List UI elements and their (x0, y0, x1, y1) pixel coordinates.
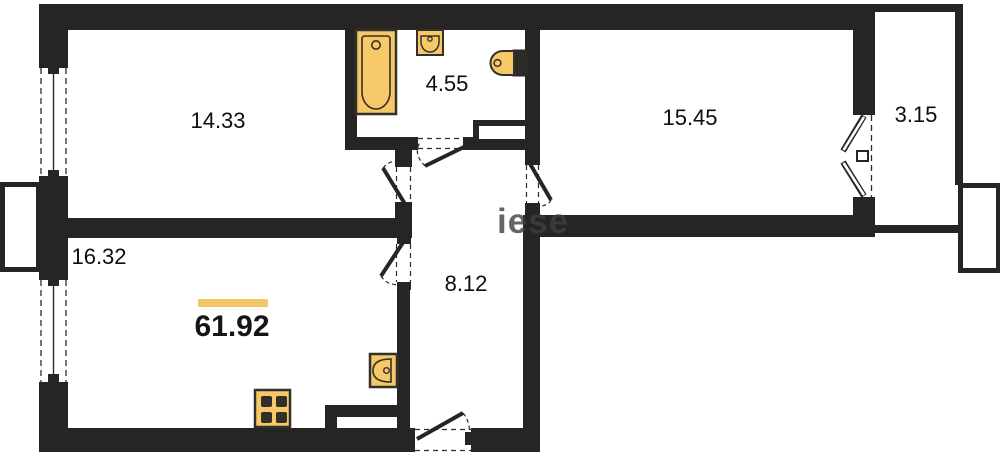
stove-icon (255, 390, 290, 427)
window-tick (48, 278, 59, 286)
bathtub-icon (356, 30, 396, 114)
right-wall-upper (853, 12, 875, 112)
balcony-right-wall (955, 4, 963, 185)
bedroom-bottom-wall (523, 215, 875, 237)
watermark-text: iese (497, 204, 569, 239)
balcony-bottom-wall (875, 225, 960, 233)
door-handle (857, 151, 868, 161)
room-label-hallway: 8.12 (445, 271, 488, 297)
stove-burner (261, 396, 272, 407)
door-leaf (383, 168, 405, 204)
window-tick (48, 66, 59, 74)
hall-right-wall (523, 237, 540, 452)
door-leaf (381, 241, 404, 276)
right-neighbor-stub (961, 186, 999, 271)
stove-burner (276, 412, 287, 423)
room-label-living-room: 14.33 (190, 108, 245, 134)
hall-left-wall-stub (395, 150, 412, 167)
living-kitchen-wall (68, 218, 412, 238)
left-neighbor-stub (3, 185, 39, 270)
door-leaf (529, 162, 551, 200)
balcony-top-wall (868, 4, 963, 12)
entrance-door (415, 413, 471, 451)
bottom-wall-left (39, 428, 415, 452)
bedroom-door (527, 162, 552, 206)
balcony-french-door (843, 115, 872, 197)
room-label-bedroom: 15.45 (662, 105, 717, 131)
toilet-tank (513, 50, 528, 76)
door-leaf-lower-inner (844, 163, 864, 195)
balcony-door-top-cap (853, 107, 875, 115)
interior-walls (68, 30, 875, 452)
bathroom-sink-icon (417, 30, 443, 55)
living-room-door (383, 161, 411, 204)
total-area-accent-bar (198, 299, 268, 307)
window-tick (48, 170, 59, 178)
kitchen-door (381, 241, 411, 285)
window-lower-left (41, 278, 66, 382)
bathroom-bottom-wall (345, 137, 418, 150)
stove-burner (276, 396, 287, 407)
window-upper-left (41, 66, 66, 178)
stove-burner (261, 412, 272, 423)
room-label-balcony: 3.15 (895, 102, 938, 128)
toilet-icon (491, 50, 529, 76)
left-wall-middle (39, 176, 68, 280)
kitchen-door-bottom-cap (397, 282, 411, 290)
door-leaf (417, 413, 463, 439)
kitchen-duct-leg (325, 405, 337, 430)
total-area-label: 61.92 (194, 310, 269, 344)
top-wall (39, 4, 870, 30)
door-swing-arc (417, 141, 425, 166)
window-tick (48, 374, 59, 382)
door-leaf-upper-inner (844, 117, 864, 150)
floor-plan: 14.33 4.55 15.45 3.15 16.32 8.12 61.92 i… (0, 0, 1000, 453)
bathroom-door (417, 139, 466, 167)
room-label-kitchen: 16.32 (71, 244, 126, 270)
room-label-bathroom: 4.55 (426, 71, 469, 97)
left-wall-top (39, 4, 68, 68)
kitchen-sink-icon (370, 354, 397, 387)
